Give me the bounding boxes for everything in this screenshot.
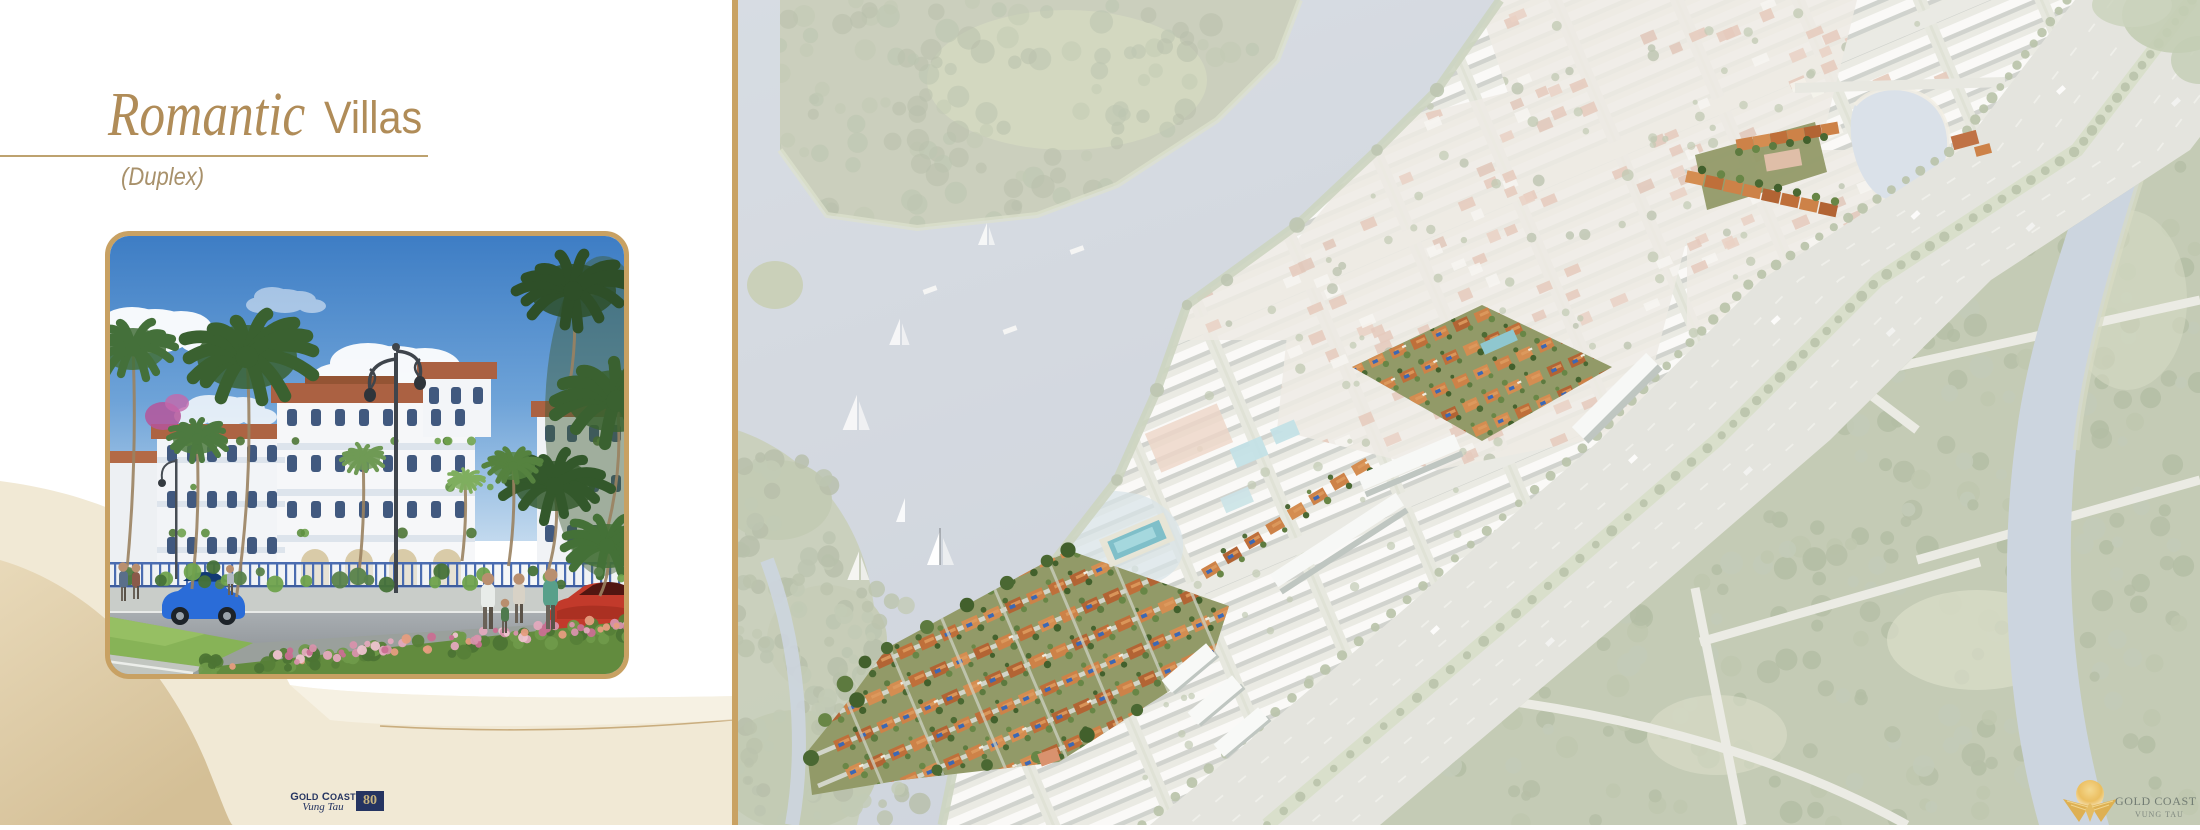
svg-text:VUNG TAU: VUNG TAU [2135,810,2184,819]
svg-text:GOLD COAST: GOLD COAST [2115,794,2197,808]
